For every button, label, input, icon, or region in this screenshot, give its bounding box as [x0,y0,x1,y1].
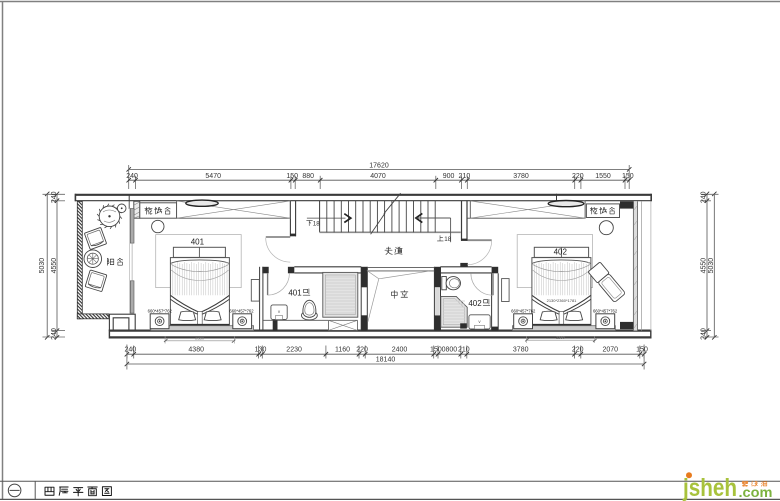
svg-text:240: 240 [700,328,707,340]
svg-text:2070: 2070 [603,346,619,353]
svg-text:402: 402 [554,247,568,256]
svg-text:5470: 5470 [205,173,221,180]
svg-text:17620: 17620 [369,162,389,169]
svg-text:240: 240 [126,173,138,180]
svg-text:2130*2360*1781: 2130*2360*1781 [547,298,578,303]
svg-text:240: 240 [124,346,136,353]
svg-text:240: 240 [51,191,58,203]
svg-text:150: 150 [430,346,442,353]
svg-text:660*457*762: 660*457*762 [229,309,254,314]
svg-text:240: 240 [700,191,707,203]
svg-text:401: 401 [191,237,205,246]
svg-text:0800: 0800 [442,346,458,353]
svg-text:4380: 4380 [188,346,204,353]
svg-text:1550: 1550 [595,173,611,180]
svg-text:18140: 18140 [376,357,396,364]
svg-text:jsheh: jsheh [682,474,737,501]
svg-text:3780: 3780 [513,346,529,353]
svg-text:220: 220 [572,173,584,180]
svg-text:210: 210 [459,173,471,180]
svg-text:18: 18 [313,221,320,228]
svg-text:240: 240 [51,328,58,340]
svg-text:4550: 4550 [700,258,707,274]
svg-text:5030: 5030 [39,258,46,274]
svg-text:880: 880 [302,173,314,180]
svg-text:150: 150 [286,173,298,180]
svg-text:2400: 2400 [392,346,408,353]
svg-text:4070: 4070 [370,173,386,180]
svg-text:1160: 1160 [335,346,350,353]
svg-text:18: 18 [444,236,451,243]
svg-text:401: 401 [288,289,302,298]
svg-text:150: 150 [636,346,648,353]
svg-text:2380: 2380 [195,336,205,341]
svg-text:220: 220 [572,346,584,353]
svg-text:150: 150 [622,173,634,180]
svg-text:402: 402 [468,299,482,308]
svg-text:660*457*762: 660*457*762 [593,309,618,314]
svg-text:2380: 2380 [556,335,566,340]
svg-text:660*457*762: 660*457*762 [148,309,173,314]
svg-text:3780: 3780 [513,173,529,180]
svg-text:2230: 2230 [286,346,302,353]
svg-text:900: 900 [443,173,455,180]
svg-text:210: 210 [458,346,470,353]
svg-text:4550: 4550 [51,258,58,274]
svg-text:130: 130 [255,346,267,353]
svg-text:5030: 5030 [708,258,715,274]
svg-text:220: 220 [356,346,368,353]
svg-text:660*457*762: 660*457*762 [511,309,536,314]
